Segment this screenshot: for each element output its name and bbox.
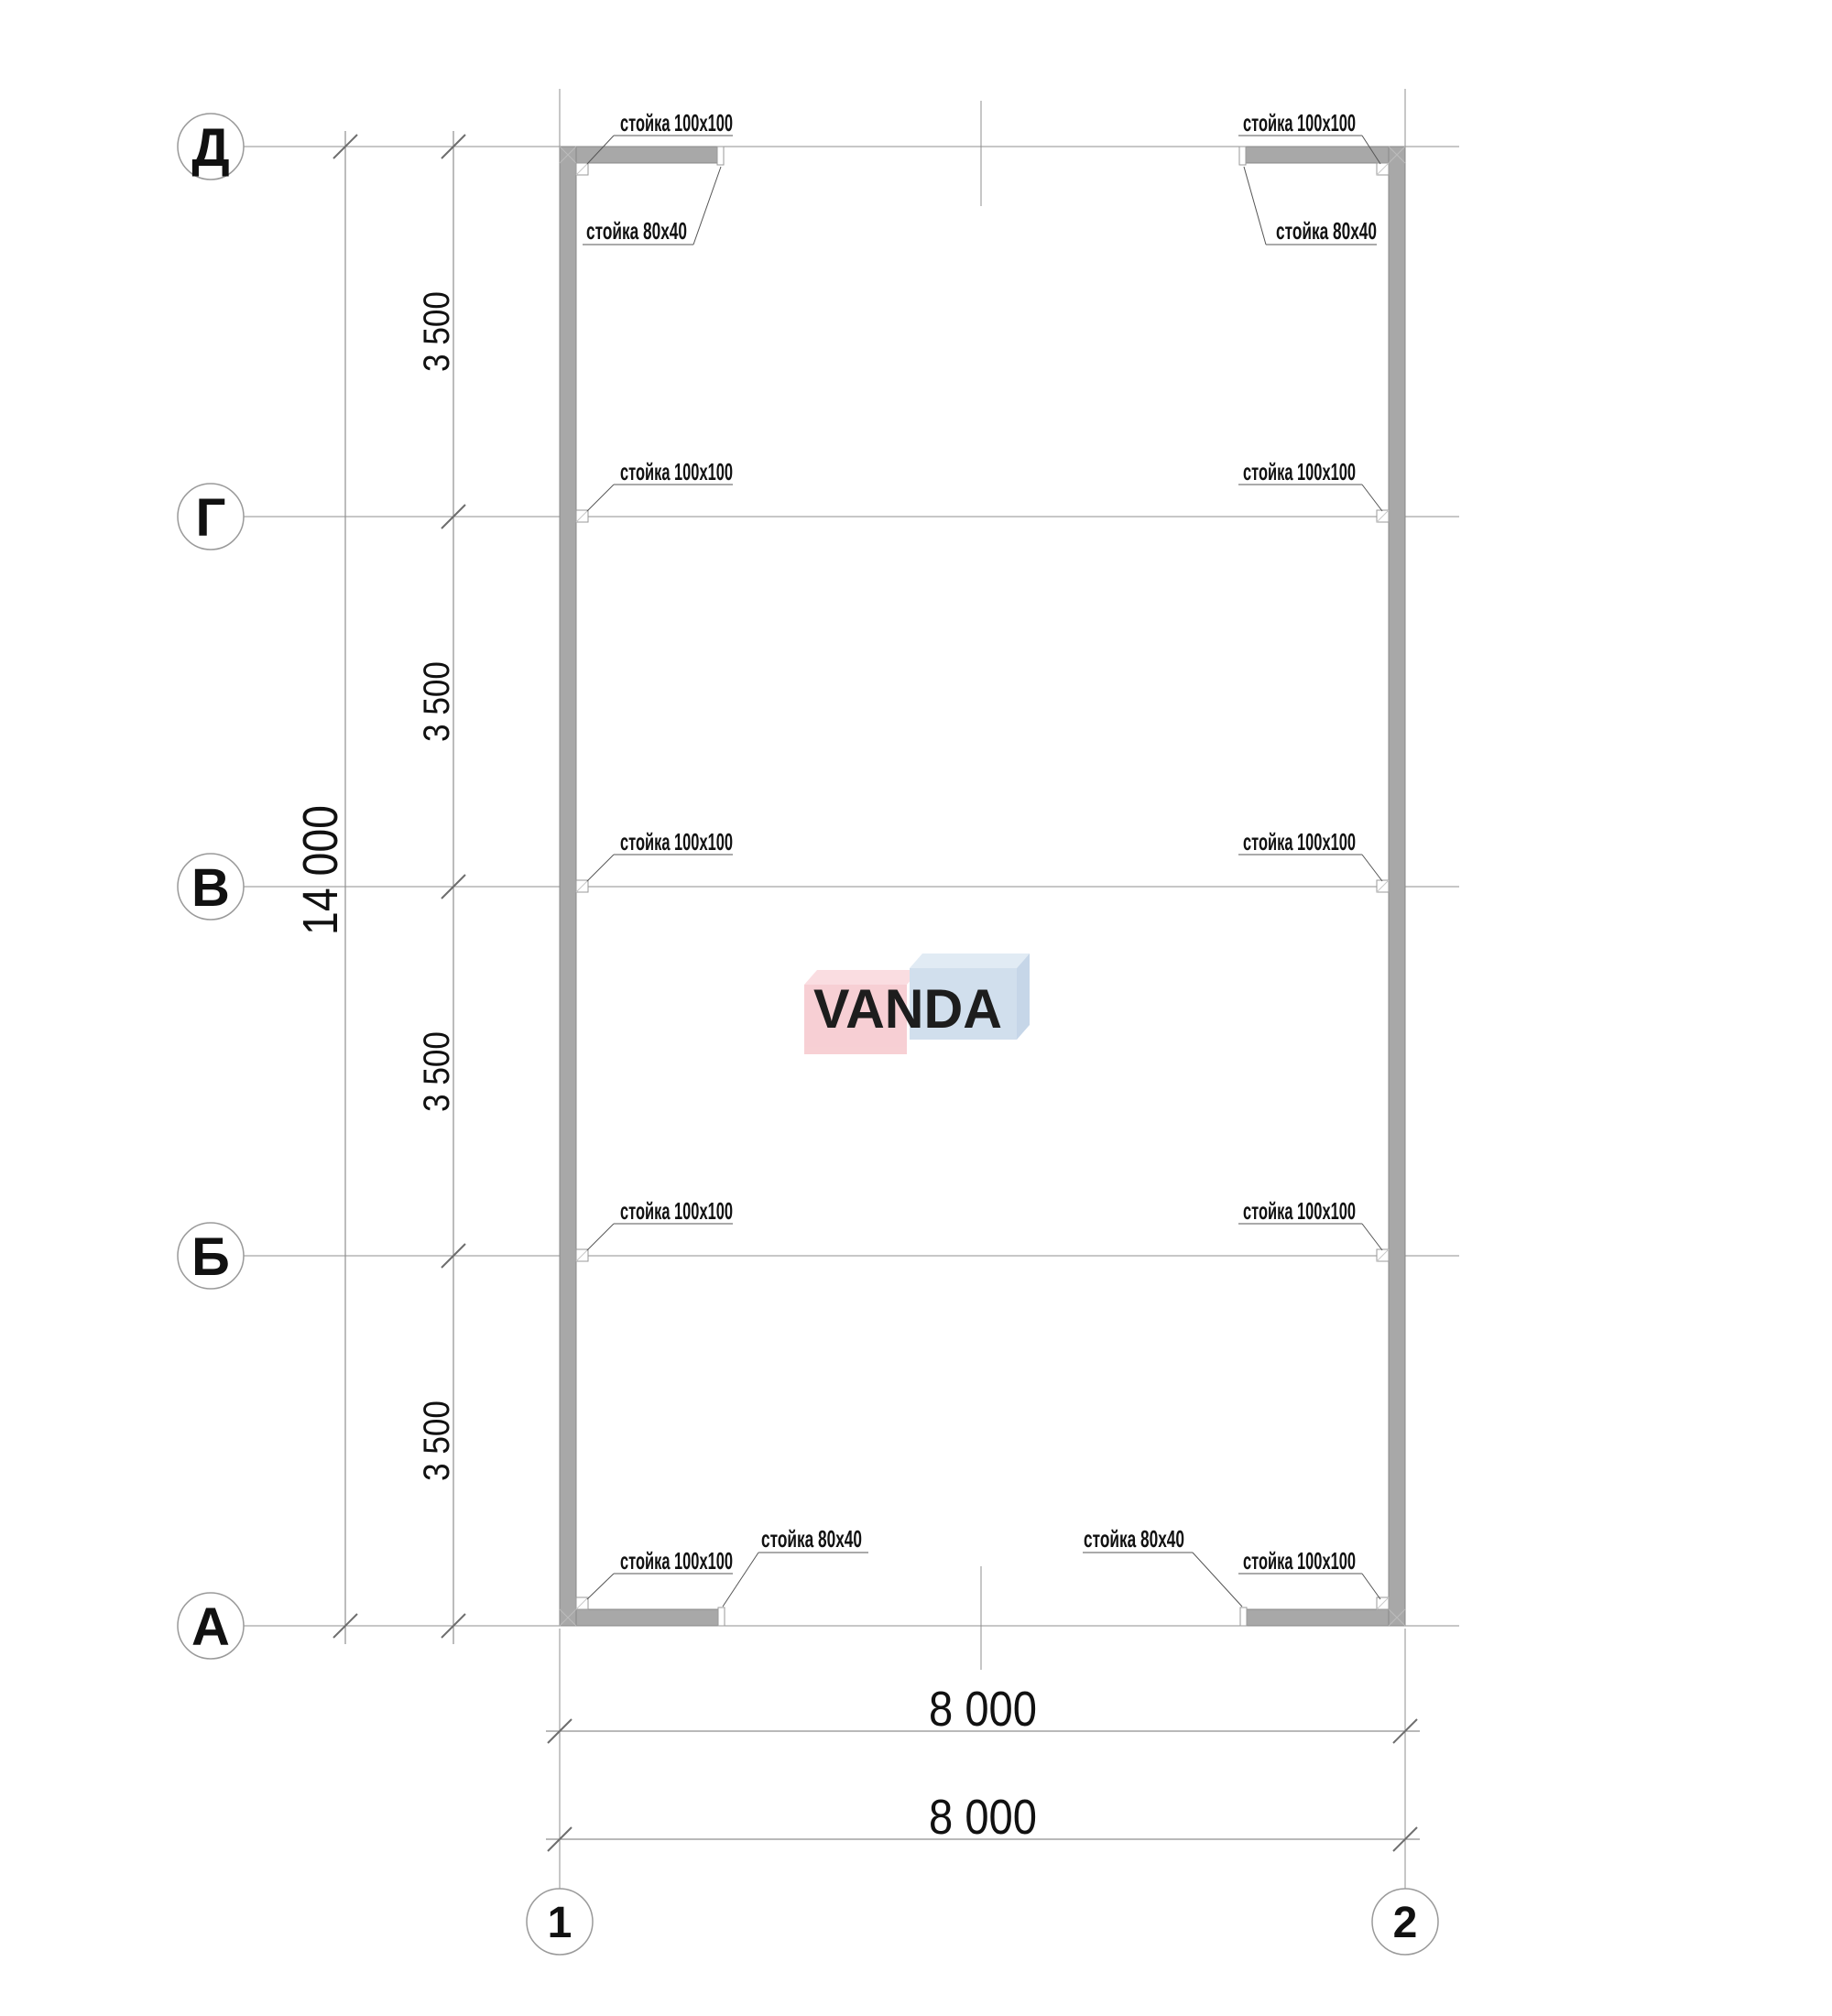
wall-top-right-segment <box>1246 147 1389 163</box>
note-post100-label: стойка 100х100 <box>1243 1547 1356 1575</box>
note-leader <box>1244 167 1266 245</box>
note-leader <box>693 167 721 245</box>
wall-bottom-right-segment <box>1247 1609 1389 1626</box>
axis-bubble-v-label: В <box>191 858 230 918</box>
note-post80-label: стойка 80х40 <box>586 217 687 245</box>
logo-blue-top-face <box>910 954 1030 968</box>
wall-right <box>1389 147 1405 1626</box>
wall-top-left-segment <box>576 147 717 163</box>
axis-bubble-g-label: Г <box>196 488 226 548</box>
note-leader <box>1362 485 1382 511</box>
wall-left <box>560 147 576 1626</box>
axis-bubble-1-label: 1 <box>548 1899 572 1947</box>
note-leader <box>587 1224 614 1250</box>
note-leader <box>587 855 614 881</box>
note-post100-label: стойка 100х100 <box>1243 458 1356 485</box>
note-leader <box>1193 1553 1242 1607</box>
note-post100-label: стойка 100х100 <box>620 1547 733 1575</box>
note-leader <box>1362 1224 1382 1250</box>
dim-width-1: 8 000 <box>929 1682 1037 1737</box>
axis-bubble-b-label: Б <box>191 1227 230 1287</box>
note-post100-label: стойка 100х100 <box>620 109 733 136</box>
logo-blue-side-face <box>1017 954 1030 1040</box>
dim-segment: 3 500 <box>417 291 457 372</box>
note-post100-label: стойка 100х100 <box>620 458 733 485</box>
note-post80-label: стойка 80х40 <box>1276 217 1377 245</box>
note-leader <box>1362 1574 1380 1599</box>
dim-width-2: 8 000 <box>929 1790 1037 1845</box>
note-leader <box>587 485 614 511</box>
dim-segment: 3 500 <box>417 1031 457 1112</box>
note-post80-label: стойка 80х40 <box>761 1525 862 1553</box>
axis-bubble-a-label: А <box>191 1597 230 1657</box>
note-leader <box>1362 855 1382 881</box>
watermark-logo: VANDA <box>804 954 1030 1054</box>
note-post80-label: стойка 80х40 <box>1084 1525 1184 1553</box>
note-post100-label: стойка 100х100 <box>620 828 733 855</box>
note-post100-label: стойка 100х100 <box>1243 1197 1356 1225</box>
note-post100-label: стойка 100х100 <box>1243 109 1356 136</box>
notes-post-100: стойка 100х100 стойка 100х100 стойка 100… <box>587 109 1382 1599</box>
post-80-top-left <box>717 147 724 165</box>
logo-wordmark: VANDA <box>813 978 1002 1040</box>
dim-total-height: 14 000 <box>293 805 348 935</box>
axis-bubble-d-label: Д <box>191 118 229 178</box>
post-80-bottom-right <box>1240 1607 1247 1626</box>
note-post100-label: стойка 100х100 <box>620 1197 733 1225</box>
note-leader <box>587 1574 614 1599</box>
axis-bubble-2-label: 2 <box>1393 1899 1418 1947</box>
post-80-bottom-left <box>718 1607 725 1626</box>
note-post100-label: стойка 100х100 <box>1243 828 1356 855</box>
wall-bottom-left-segment <box>576 1609 718 1626</box>
floor-plan-drawing: 14 000 3 500 3 500 3 500 3 500 8 000 8 0… <box>0 0 1832 2016</box>
dim-segment: 3 500 <box>417 661 457 742</box>
post-80-top-right <box>1239 147 1246 165</box>
dim-segment: 3 500 <box>417 1400 457 1481</box>
